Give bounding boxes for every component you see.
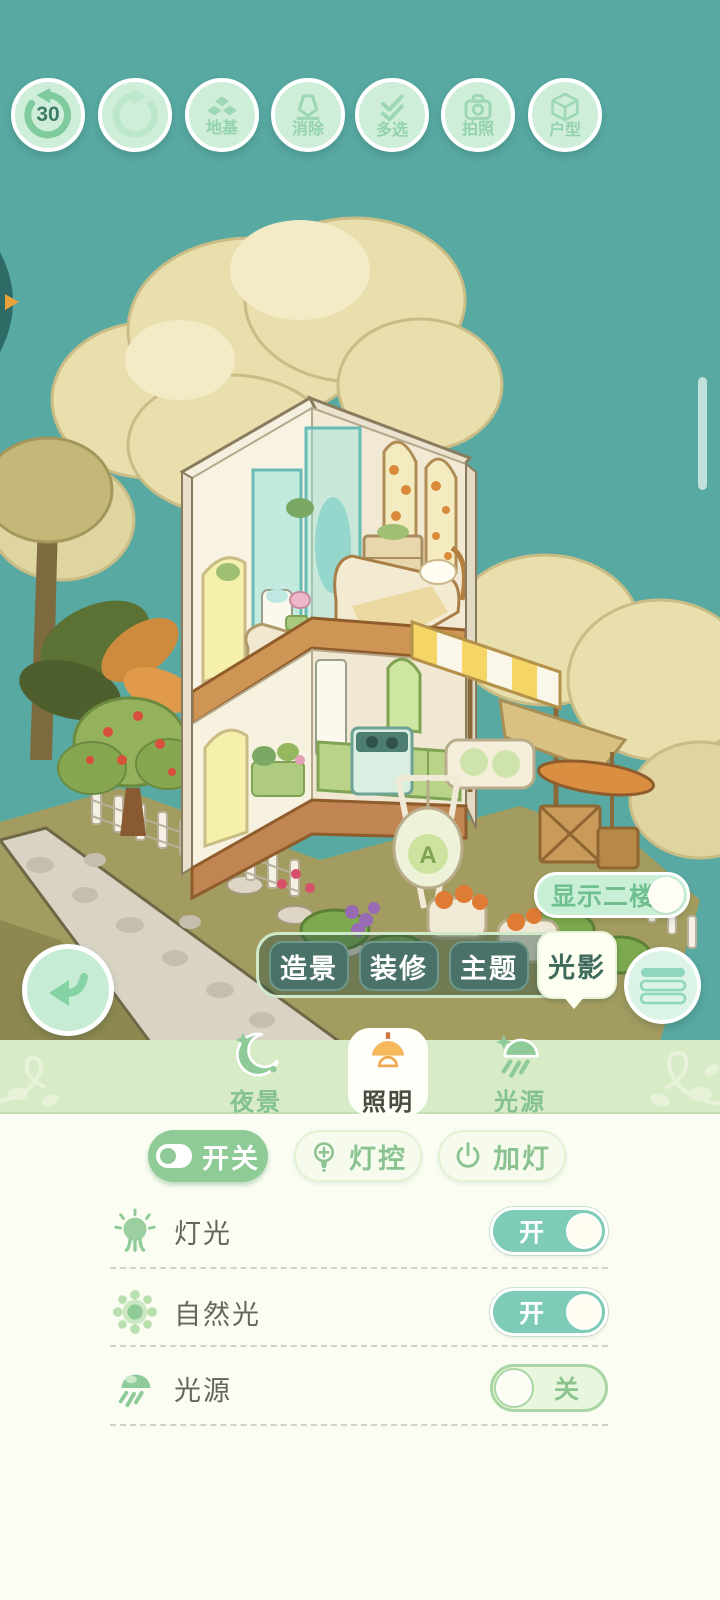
undo-button[interactable]: 30 xyxy=(11,78,85,152)
foundation-tiles-icon xyxy=(205,94,239,120)
setting-label: 自然光 xyxy=(174,1293,261,1332)
power-icon xyxy=(453,1141,483,1171)
setting-label: 光源 xyxy=(174,1369,232,1408)
bulb-rays-icon xyxy=(112,1208,158,1254)
light-control-button[interactable]: 灯控 xyxy=(294,1130,422,1182)
lamp-icon xyxy=(362,1028,414,1080)
selected-tab-pointer xyxy=(562,995,586,1009)
light-source-toggle[interactable]: 关 xyxy=(490,1364,608,1412)
erase-button[interactable]: 消除 xyxy=(271,78,345,152)
photo-label: 拍照 xyxy=(462,122,494,138)
toggle-state: 开 xyxy=(519,1213,544,1249)
bulb-plus-icon xyxy=(309,1140,339,1172)
foundation-label: 地基 xyxy=(206,121,238,137)
mode-tab-bar: 造景 装修 主题 光影 xyxy=(256,932,616,998)
toggle-state: 关 xyxy=(554,1370,579,1406)
redo-arrow-icon xyxy=(108,88,162,142)
menu-button[interactable] xyxy=(624,947,701,1024)
toggle-knob xyxy=(564,1211,604,1251)
panel-tab-source[interactable]: 光源 xyxy=(458,1028,582,1117)
setting-row-light-source: 光源 关 xyxy=(112,1360,608,1416)
show-second-floor-toggle[interactable]: 显示二楼 xyxy=(534,872,690,918)
switch-mode-label: 开关 xyxy=(202,1137,260,1176)
panel-tab-label: 照明 xyxy=(362,1082,414,1117)
lights-toggle[interactable]: 开 xyxy=(490,1207,608,1255)
moon-icon xyxy=(230,1028,282,1080)
panel-tab-illumination[interactable]: 照明 xyxy=(326,1028,450,1117)
double-check-icon xyxy=(376,92,408,122)
toggle-knob xyxy=(494,1368,534,1408)
iso-cube-icon xyxy=(549,92,581,122)
light-control-label: 灯控 xyxy=(349,1137,407,1176)
row-divider xyxy=(110,1424,608,1426)
camera-icon xyxy=(462,93,494,121)
add-light-button[interactable]: 加灯 xyxy=(438,1130,566,1182)
switch-mode-button[interactable]: 开关 xyxy=(148,1130,268,1182)
floral-decor-left xyxy=(0,1042,110,1112)
hamburger-icon xyxy=(639,966,687,1006)
panel-tab-label: 光源 xyxy=(494,1082,546,1117)
tab-landscape[interactable]: 造景 xyxy=(269,941,349,991)
layout-button[interactable]: 户型 xyxy=(528,78,602,152)
tab-decorate[interactable]: 装修 xyxy=(359,941,439,991)
jellyfish-light-icon xyxy=(494,1028,546,1080)
floral-decor-right xyxy=(590,1040,720,1114)
show-second-floor-label: 显示二楼 xyxy=(551,877,655,913)
tab-lighting[interactable]: 光影 xyxy=(537,931,617,999)
app-screen: A xyxy=(0,0,720,1600)
scene-scrollbar[interactable] xyxy=(698,377,707,490)
undo-count: 30 xyxy=(15,82,81,148)
jellyfish-light-icon xyxy=(112,1365,158,1411)
row-divider xyxy=(110,1267,608,1269)
back-button[interactable] xyxy=(22,944,114,1036)
natural-light-toggle[interactable]: 开 xyxy=(490,1288,608,1336)
erase-label: 消除 xyxy=(292,122,324,138)
setting-row-lights: 灯光 开 xyxy=(112,1203,608,1259)
plant-table xyxy=(252,743,305,796)
photo-button[interactable]: 拍照 xyxy=(441,78,515,152)
add-light-label: 加灯 xyxy=(493,1137,551,1176)
back-arrow-icon xyxy=(43,967,93,1013)
panel-tab-night[interactable]: 夜景 xyxy=(194,1028,318,1117)
setting-row-natural-light: 自然光 开 xyxy=(112,1284,608,1340)
layout-label: 户型 xyxy=(549,123,581,139)
panel-tab-label: 夜景 xyxy=(230,1082,282,1117)
eraser-icon xyxy=(293,93,323,121)
sun-icon xyxy=(112,1289,158,1335)
row-divider xyxy=(110,1345,608,1347)
setting-label: 灯光 xyxy=(174,1212,232,1251)
multiselect-label: 多选 xyxy=(376,123,408,139)
edge-flap-button[interactable] xyxy=(0,252,26,352)
panel-header: 夜景 照明 xyxy=(0,1040,720,1114)
toggle-glyph-icon xyxy=(156,1144,192,1168)
redo-button[interactable] xyxy=(98,78,172,152)
foundation-button[interactable]: 地基 xyxy=(185,78,259,152)
toggle-knob xyxy=(648,877,684,913)
multiselect-button[interactable]: 多选 xyxy=(355,78,429,152)
toggle-state: 开 xyxy=(519,1294,544,1330)
toggle-knob xyxy=(564,1292,604,1332)
tab-theme[interactable]: 主题 xyxy=(449,941,529,991)
svg-text:A: A xyxy=(419,842,436,869)
lower-arch-door xyxy=(205,730,247,846)
